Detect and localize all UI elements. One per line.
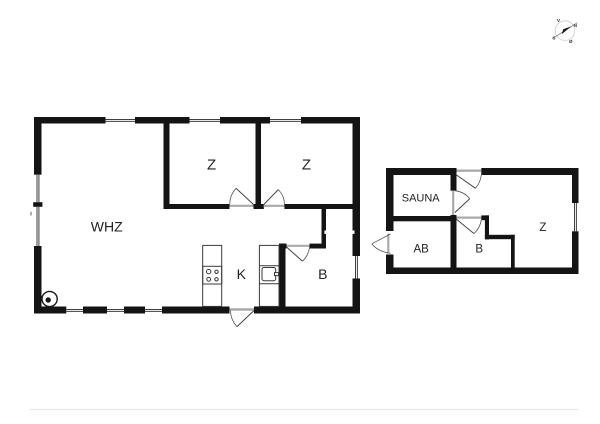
svg-text:SAUNA: SAUNA [402,193,441,205]
svg-text:B: B [318,266,327,282]
svg-text:Z: Z [539,222,546,234]
svg-text:WHZ: WHZ [91,219,123,235]
svg-text:Z: Z [302,157,311,174]
svg-text:K: K [237,266,247,282]
svg-text:Z: Z [207,157,216,174]
svg-text:B: B [475,243,483,255]
svg-text:AB: AB [414,243,430,255]
svg-text:N: N [574,23,578,29]
svg-text:Ø: Ø [569,39,573,45]
